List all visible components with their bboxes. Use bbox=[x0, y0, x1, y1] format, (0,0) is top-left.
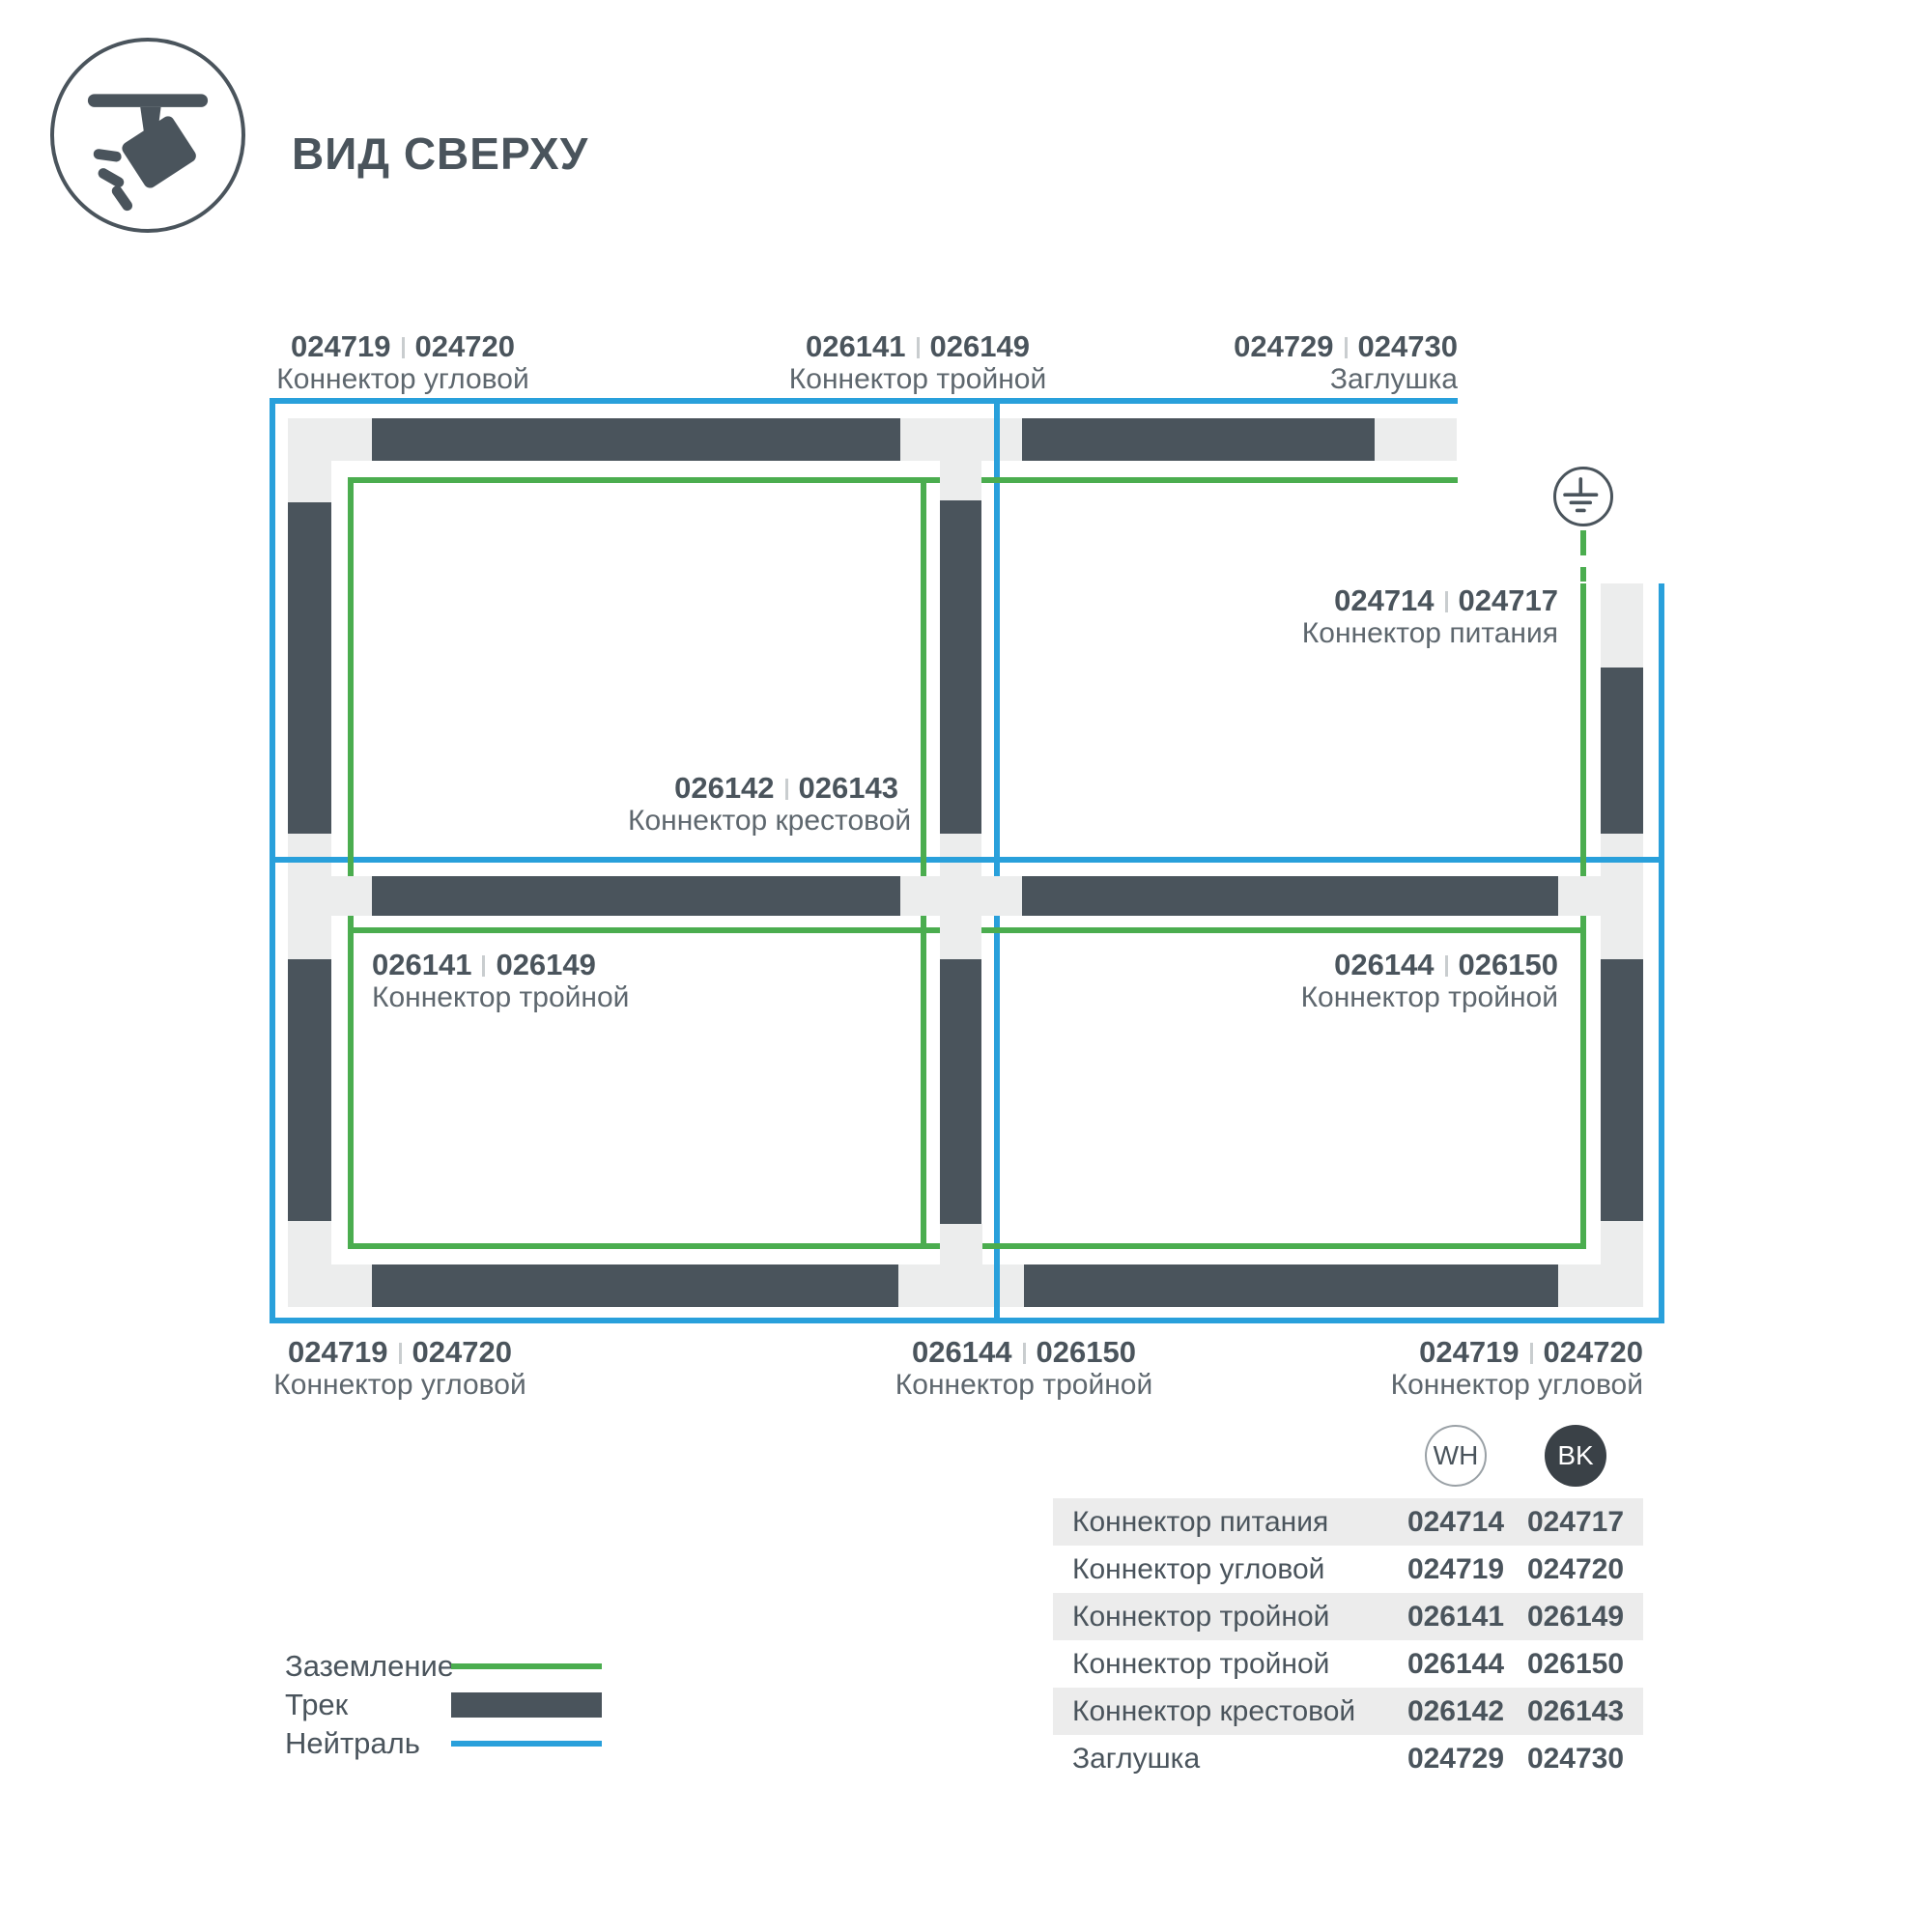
track-segment bbox=[372, 876, 900, 916]
ground-line-dashed bbox=[1580, 530, 1586, 555]
neutral-line-center bbox=[994, 916, 1000, 1323]
track-segment bbox=[372, 418, 900, 461]
connector-corner-bottom-left bbox=[288, 1264, 372, 1307]
connector-tee-mid-left bbox=[331, 876, 372, 916]
neutral-line-swatch bbox=[451, 1741, 602, 1747]
earth-ground-icon bbox=[1553, 467, 1613, 526]
part-name: Коннектор угловой bbox=[265, 1370, 535, 1401]
color-badge-black: BK bbox=[1545, 1425, 1606, 1487]
ground-line-top bbox=[981, 477, 1458, 483]
ground-line-swatch bbox=[451, 1663, 602, 1669]
neutral-line-center bbox=[994, 398, 1000, 876]
wh-code-cell: 026144 bbox=[1396, 1648, 1516, 1681]
color-badge-white: WH bbox=[1425, 1425, 1487, 1487]
part-name: Коннектор тройной bbox=[372, 982, 642, 1013]
legend-item-ground: Заземление bbox=[285, 1647, 604, 1686]
legend-label: Нейтраль bbox=[285, 1726, 451, 1761]
connector-tee-bottom bbox=[898, 1264, 1024, 1307]
article-codes: 024714024717 bbox=[1288, 584, 1558, 616]
track-segment bbox=[1022, 876, 1558, 916]
code-separator bbox=[399, 1343, 402, 1364]
connector-endcap-top-right bbox=[1375, 418, 1457, 461]
code-separator bbox=[1345, 337, 1348, 358]
article-codes: 026142026143 bbox=[628, 772, 898, 804]
wh-code-cell: 026142 bbox=[1396, 1695, 1516, 1728]
code-separator bbox=[1530, 1343, 1533, 1364]
neutral-line-bottom bbox=[270, 1318, 1664, 1323]
legend-label: Трек bbox=[285, 1688, 451, 1722]
ground-line-bottom bbox=[982, 1243, 1586, 1249]
part-name: Коннектор угловой bbox=[268, 364, 538, 395]
part-name: Коннектор питания bbox=[1288, 618, 1558, 649]
table-row: Коннектор тройной 026141 026149 bbox=[1053, 1593, 1643, 1640]
part-name-cell: Коннектор угловой bbox=[1053, 1553, 1396, 1586]
callout-tee-bottom: 026144026150 Коннектор тройной bbox=[889, 1336, 1159, 1401]
legend-label: Заземление bbox=[285, 1649, 451, 1684]
code-separator bbox=[1023, 1343, 1026, 1364]
code-separator bbox=[1445, 955, 1448, 977]
connector-tee-top bbox=[940, 461, 981, 500]
track-segment bbox=[1022, 418, 1375, 461]
connector-corner-top-left bbox=[288, 418, 372, 461]
ground-line-right bbox=[1580, 583, 1586, 876]
callout-tee-mid-right: 026144026150 Коннектор тройной bbox=[1288, 949, 1558, 1013]
article-codes: 026144026150 bbox=[1288, 949, 1558, 980]
connector-corner-bottom-right bbox=[1558, 1264, 1643, 1307]
ground-line-left bbox=[348, 916, 354, 1249]
ground-line-left bbox=[348, 477, 354, 876]
article-codes: 024719024720 bbox=[1373, 1336, 1643, 1368]
callout-corner-bottom-right: 024719024720 Коннектор угловой bbox=[1373, 1336, 1643, 1401]
connector-power-feed-cap bbox=[1601, 583, 1643, 668]
part-name-cell: Коннектор крестовой bbox=[1053, 1695, 1396, 1728]
article-codes: 026141026149 bbox=[782, 330, 1053, 362]
track-segment bbox=[288, 502, 331, 834]
callout-corner-top-left: 024719024720 Коннектор угловой bbox=[268, 330, 538, 395]
connector-tee-mid-right bbox=[1601, 834, 1643, 959]
table-row: Коннектор угловой 024719 024720 bbox=[1053, 1546, 1643, 1593]
part-name-cell: Заглушка bbox=[1053, 1743, 1396, 1776]
callout-tee-top: 026141026149 Коннектор тройной bbox=[782, 330, 1053, 395]
callout-power-feed: 024714024717 Коннектор питания bbox=[1288, 584, 1558, 649]
page-title: ВИД СВЕРХУ bbox=[292, 128, 588, 180]
legend-item-track: Трек bbox=[285, 1686, 604, 1724]
bk-code-cell: 026143 bbox=[1516, 1695, 1635, 1728]
connector-tee-mid-left bbox=[288, 834, 331, 959]
part-name-cell: Коннектор питания bbox=[1053, 1506, 1396, 1539]
article-codes: 024729024730 bbox=[1187, 330, 1458, 362]
neutral-line-top bbox=[270, 398, 1458, 404]
legend-item-neutral: Нейтраль bbox=[285, 1724, 604, 1763]
wh-code-cell: 024729 bbox=[1396, 1743, 1516, 1776]
ground-line-bottom bbox=[348, 1243, 940, 1249]
part-name: Коннектор тройной bbox=[1288, 982, 1558, 1013]
neutral-line-right bbox=[1659, 583, 1664, 1323]
part-name: Коннектор тройной bbox=[782, 364, 1053, 395]
table-row: Коннектор тройной 026144 026150 bbox=[1053, 1640, 1643, 1688]
ground-line-middle bbox=[981, 927, 1586, 933]
track-segment bbox=[1601, 668, 1643, 834]
wh-code-cell: 026141 bbox=[1396, 1601, 1516, 1634]
bk-code-cell: 026149 bbox=[1516, 1601, 1635, 1634]
part-name-cell: Коннектор тройной bbox=[1053, 1601, 1396, 1634]
ground-line-top bbox=[348, 477, 940, 483]
track-segment bbox=[940, 959, 981, 1224]
code-separator bbox=[482, 955, 485, 977]
legend: Заземление Трек Нейтраль bbox=[285, 1647, 604, 1763]
connector-corner-top-left bbox=[288, 461, 331, 502]
connector-tee-bottom bbox=[940, 1224, 982, 1264]
track-segment bbox=[288, 959, 331, 1221]
code-separator bbox=[917, 337, 920, 358]
part-name-cell: Коннектор тройной bbox=[1053, 1648, 1396, 1681]
bk-code-cell: 024720 bbox=[1516, 1553, 1635, 1586]
neutral-line-middle bbox=[270, 857, 1664, 863]
callout-cross-center: 026142026143 Коннектор крестовой bbox=[628, 772, 898, 837]
part-name: Коннектор крестовой bbox=[628, 806, 898, 837]
page: { "header": { "title": "ВИД СВЕРХУ" }, "… bbox=[0, 0, 1932, 1932]
code-separator bbox=[785, 779, 788, 800]
code-separator bbox=[1445, 591, 1448, 612]
part-name: Коннектор угловой bbox=[1373, 1370, 1643, 1401]
track-segment bbox=[1024, 1264, 1558, 1307]
bk-code-cell: 026150 bbox=[1516, 1648, 1635, 1681]
connector-cross-center bbox=[900, 876, 1022, 916]
callout-tee-mid-left: 026141026149 Коннектор тройной bbox=[372, 949, 642, 1013]
neutral-line-left bbox=[270, 398, 275, 1323]
bk-code-cell: 024717 bbox=[1516, 1506, 1635, 1539]
article-codes: 026144026150 bbox=[889, 1336, 1159, 1368]
code-separator bbox=[402, 337, 405, 358]
ground-line-dashed bbox=[1580, 567, 1586, 582]
connector-tee-top bbox=[900, 418, 1022, 461]
table-row: Коннектор питания 024714 024717 bbox=[1053, 1498, 1643, 1546]
table-row: Коннектор крестовой 026142 026143 bbox=[1053, 1688, 1643, 1735]
track-segment bbox=[372, 1264, 898, 1307]
track-light-icon bbox=[50, 38, 245, 233]
wh-code-cell: 024714 bbox=[1396, 1506, 1516, 1539]
ground-line-center bbox=[921, 916, 926, 1249]
track-bar-swatch bbox=[451, 1692, 602, 1718]
connector-tee-mid-right bbox=[1558, 876, 1601, 916]
table-row: Заглушка 024729 024730 bbox=[1053, 1735, 1643, 1782]
track-segment bbox=[1601, 959, 1643, 1221]
callout-endcap-top-right: 024729024730 Заглушка bbox=[1187, 330, 1458, 395]
article-codes: 026141026149 bbox=[372, 949, 642, 980]
track-light-glyph bbox=[54, 42, 241, 229]
ground-line-middle bbox=[348, 927, 940, 933]
article-codes: 024719024720 bbox=[268, 330, 538, 362]
ground-line-center bbox=[921, 477, 926, 876]
part-name: Коннектор тройной bbox=[889, 1370, 1159, 1401]
wh-code-cell: 024719 bbox=[1396, 1553, 1516, 1586]
track-segment bbox=[940, 500, 981, 834]
ground-line-right bbox=[1580, 916, 1586, 1249]
bk-code-cell: 024730 bbox=[1516, 1743, 1635, 1776]
part-name: Заглушка bbox=[1187, 364, 1458, 395]
article-codes: 024719024720 bbox=[265, 1336, 535, 1368]
callout-corner-bottom-left: 024719024720 Коннектор угловой bbox=[265, 1336, 535, 1401]
